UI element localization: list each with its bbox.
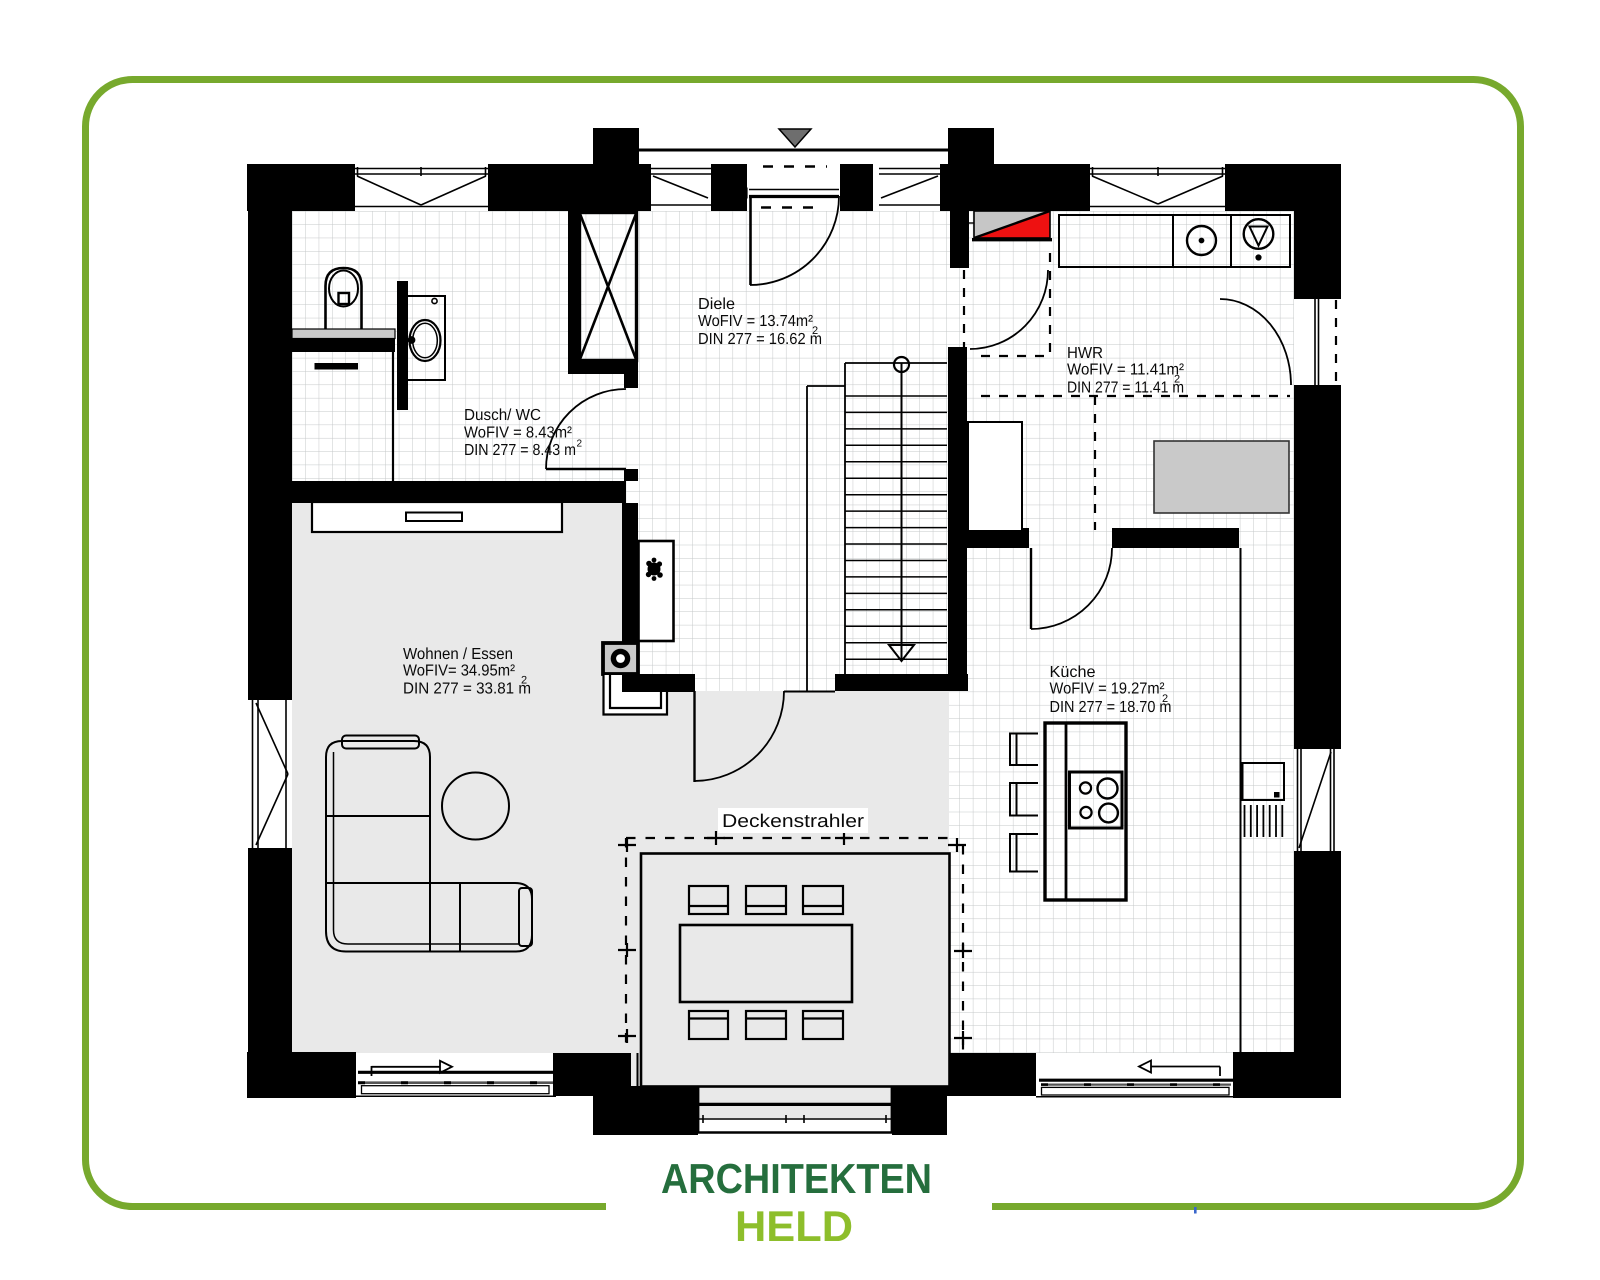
svg-text:2: 2 <box>577 439 583 450</box>
svg-text:HELD: HELD <box>735 1203 853 1251</box>
svg-text:Diele: Diele <box>698 296 735 313</box>
svg-text:2: 2 <box>1162 693 1168 705</box>
svg-text:DIN 277 = 33.81 m: DIN 277 = 33.81 m <box>403 681 531 698</box>
svg-text:2: 2 <box>1174 374 1180 386</box>
svg-text:2: 2 <box>812 325 818 337</box>
svg-text:WoFIV = 8.43m²: WoFIV = 8.43m² <box>464 425 573 442</box>
svg-text:Dusch/ WC: Dusch/ WC <box>464 407 541 424</box>
svg-text:DIN 277 = 18.70 m: DIN 277 = 18.70 m <box>1050 699 1172 716</box>
svg-text:ARCHITEKTEN: ARCHITEKTEN <box>661 1155 932 1202</box>
svg-text:WoFIV = 13.74m²: WoFIV = 13.74m² <box>698 313 814 330</box>
svg-text:DIN 277 = 8.43 m: DIN 277 = 8.43 m <box>464 442 576 459</box>
svg-text:HWR: HWR <box>1067 345 1103 362</box>
svg-text:WoFIV = 11.41m²: WoFIV = 11.41m² <box>1067 362 1185 379</box>
svg-text:Deckenstrahler: Deckenstrahler <box>722 810 864 831</box>
svg-text:Küche: Küche <box>1050 664 1096 681</box>
svg-text:2: 2 <box>521 675 527 687</box>
svg-text:WoFIV= 34.95m²: WoFIV= 34.95m² <box>403 663 516 680</box>
svg-text:DIN 277 = 16.62 m: DIN 277 = 16.62 m <box>698 331 822 348</box>
svg-text:DIN 277 = 11.41 m: DIN 277 = 11.41 m <box>1067 380 1184 397</box>
svg-text:Wohnen / Essen: Wohnen / Essen <box>403 646 513 663</box>
svg-text:WoFIV = 19.27m²: WoFIV = 19.27m² <box>1050 681 1166 698</box>
